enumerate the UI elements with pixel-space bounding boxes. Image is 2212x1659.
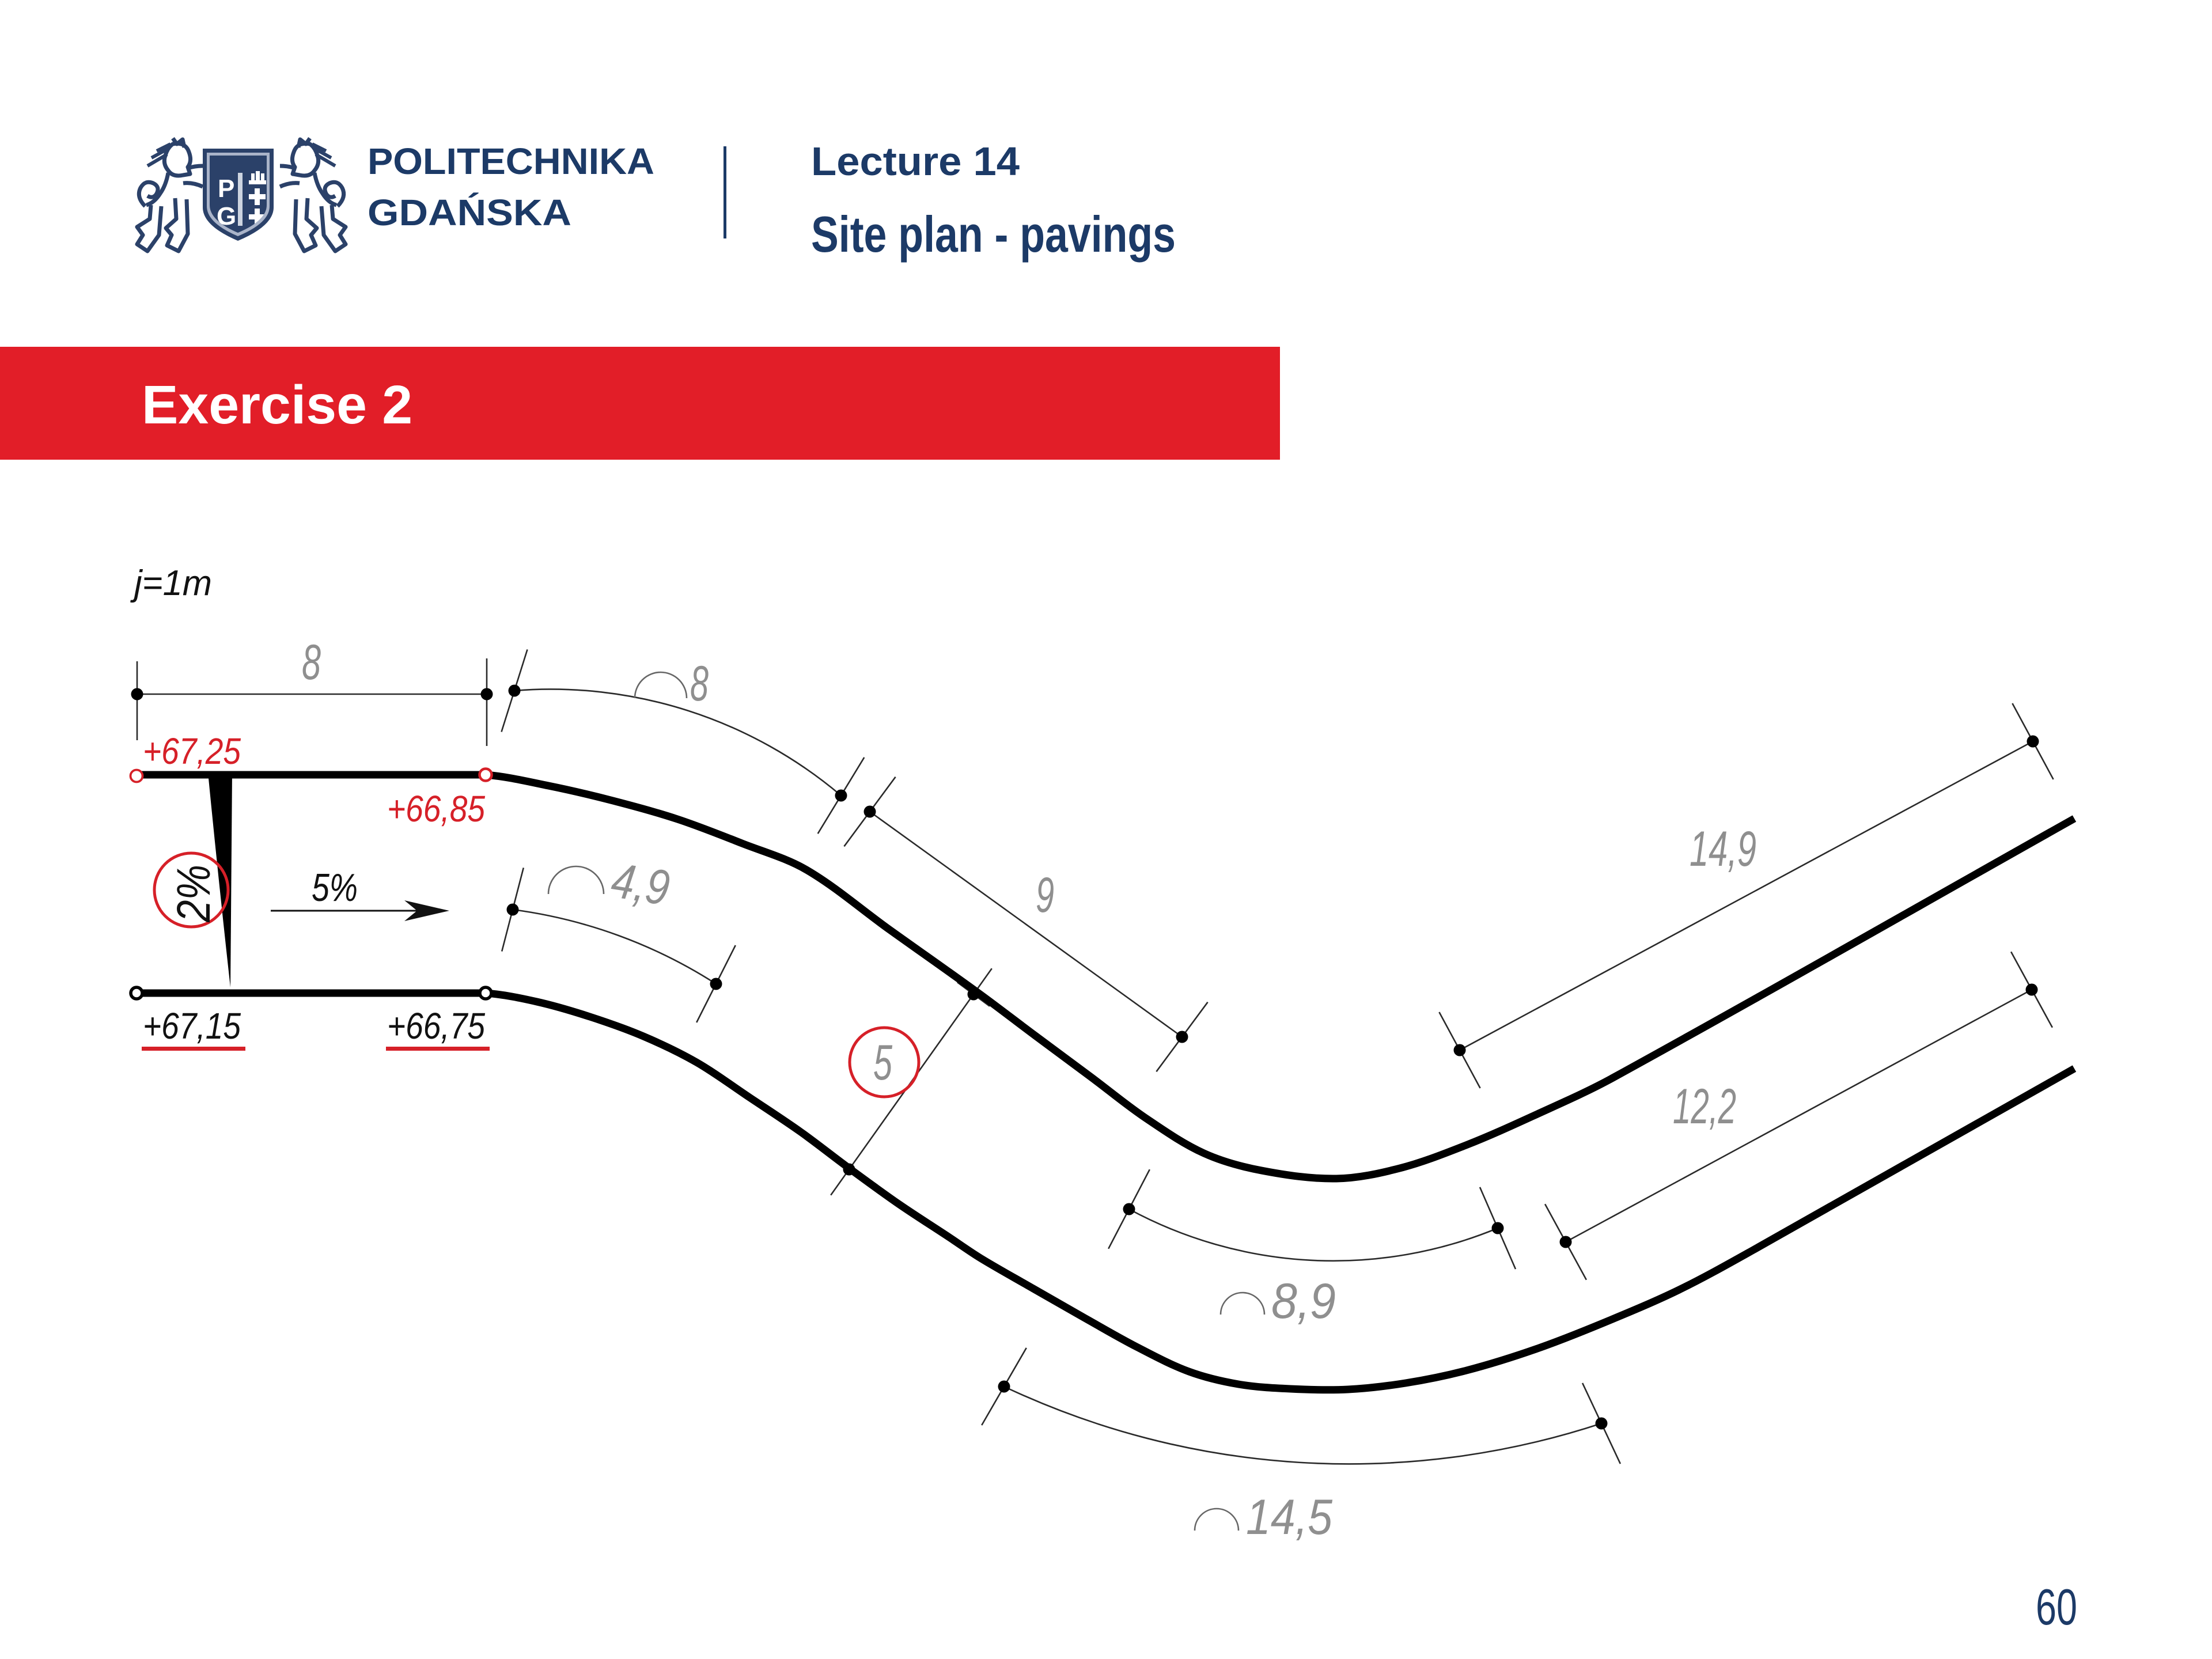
svg-text:60: 60 xyxy=(2036,1578,2077,1635)
svg-text:14,5: 14,5 xyxy=(1246,1490,1333,1545)
svg-text:+67,15: +67,15 xyxy=(143,1005,241,1047)
svg-text:GDAŃSKA: GDAŃSKA xyxy=(368,192,571,233)
svg-text:Lecture 14: Lecture 14 xyxy=(811,139,1020,184)
svg-text:8: 8 xyxy=(302,635,321,690)
svg-text:j=1m: j=1m xyxy=(130,563,212,603)
svg-text:G: G xyxy=(217,202,236,230)
svg-text:4,9: 4,9 xyxy=(608,853,673,916)
svg-text:12,2: 12,2 xyxy=(1673,1079,1736,1134)
svg-text:9: 9 xyxy=(1036,868,1054,923)
svg-text:Site plan - pavings: Site plan - pavings xyxy=(811,206,1176,263)
svg-text:5: 5 xyxy=(873,1035,893,1090)
svg-text:Exercise 2: Exercise 2 xyxy=(142,374,412,435)
svg-text:POLITECHNIKA: POLITECHNIKA xyxy=(368,141,654,182)
svg-text:+67,25: +67,25 xyxy=(143,730,241,772)
svg-text:5%: 5% xyxy=(312,866,358,910)
svg-text:+66,75: +66,75 xyxy=(387,1005,485,1047)
svg-text:8: 8 xyxy=(690,656,709,711)
svg-text:2%: 2% xyxy=(168,865,220,923)
svg-text:8,9: 8,9 xyxy=(1271,1274,1336,1329)
svg-text:14,9: 14,9 xyxy=(1690,821,1756,877)
svg-text:+66,85: +66,85 xyxy=(387,788,485,829)
svg-text:P: P xyxy=(218,175,234,203)
